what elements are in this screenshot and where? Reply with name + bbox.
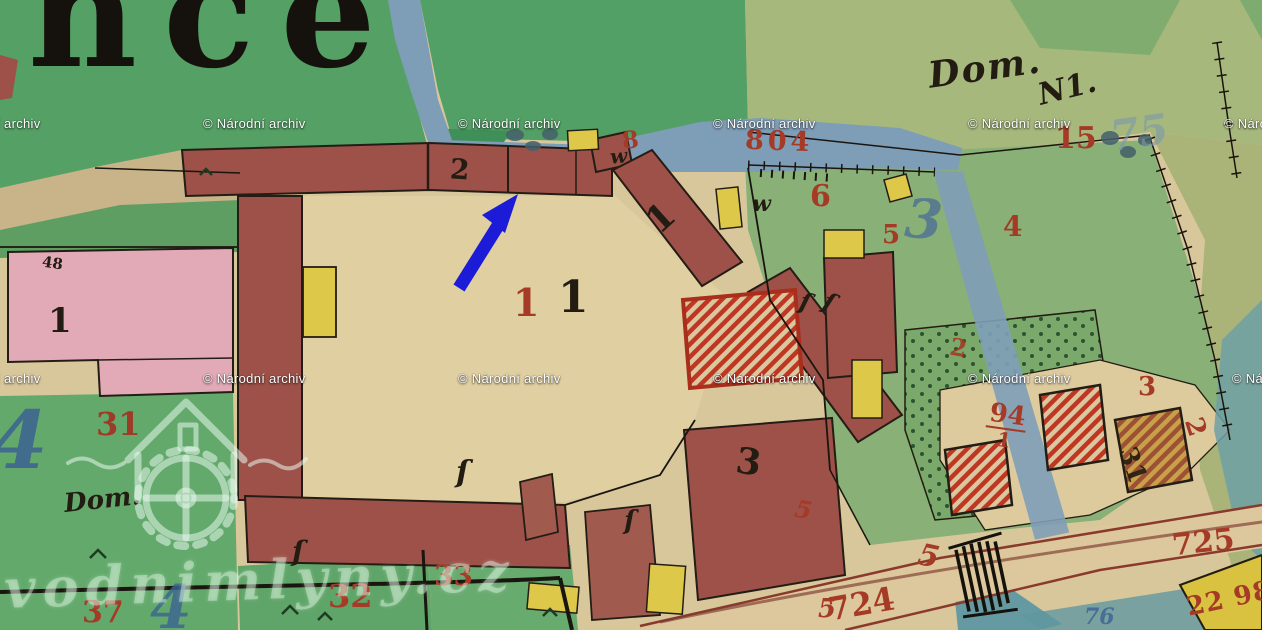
label-blue-4: 4 [0,400,48,480]
gate-mark: ſ [456,458,469,488]
place-name-fragment: ince [0,0,402,89]
label-building-3: 3 [734,442,764,481]
archive-watermark: © Národní archiv [713,371,816,386]
map-viewport[interactable]: ince Dom. N1. 15 75 2 8 w 804 w 6 5 3 4 … [0,0,1262,630]
archive-watermark: © Národní archiv [713,116,816,131]
archive-watermark: © Národní archiv [0,116,41,131]
archive-watermark: © Národní archiv [968,371,1071,386]
label-stream-804: 804 [745,127,814,156]
label-red-5: 5 [882,222,900,248]
archive-watermark: © Národní archiv [0,371,41,386]
label-fraction-94-1: 94 1 [983,399,1029,452]
label-ghost-75: 75 [1107,108,1171,158]
label-red-3b: 3 [1138,374,1156,400]
label-w-right: w [752,193,771,215]
archive-watermark: © Národní archiv [968,116,1071,131]
label-road-725: 725 [1171,525,1236,561]
archive-watermark: © Národní archiv [458,116,561,131]
label-48: 48 [41,255,64,273]
label-w-left: w [609,145,628,166]
label-blue-76: 76 [1084,606,1115,628]
archive-watermark: © Národní archiv [458,371,561,386]
archive-watermark: © Národní archiv [1232,371,1262,386]
label-red-6: 6 [810,182,831,212]
logo-water-wave [68,459,124,468]
logo-chimney [180,425,196,449]
archive-watermark: © Národní archiv [203,371,306,386]
label-blue-3: 3 [903,191,944,247]
label-red-4: 4 [1003,213,1022,241]
label-road-5b: 5 [818,596,836,622]
gate-mark: ſ [624,508,635,534]
label-pink-building-1: 1 [48,304,72,338]
label-courtyard-1-black: 1 [558,276,589,320]
archive-watermark: © Národní archiv [1224,116,1262,131]
logo-water-wave [250,459,306,468]
label-courtyard-1-red: 1 [513,284,539,322]
label-building-2: 2 [449,155,470,184]
archive-watermark: © Národní archiv [203,116,306,131]
